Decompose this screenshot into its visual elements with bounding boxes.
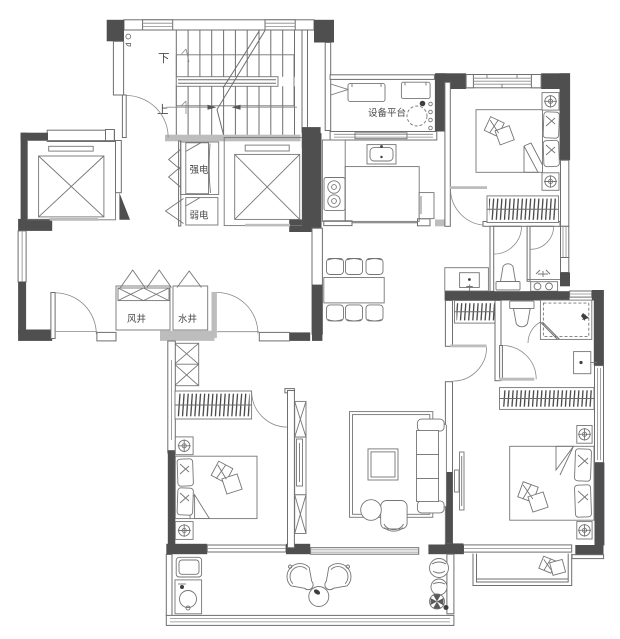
svg-text:风井: 风井 <box>127 313 146 325</box>
svg-text:设备平台: 设备平台 <box>368 107 406 119</box>
svg-text:水井: 水井 <box>178 313 197 325</box>
svg-text:下: 下 <box>158 53 170 65</box>
svg-text:强电: 强电 <box>190 164 210 176</box>
svg-text:上: 上 <box>157 104 169 117</box>
svg-text:弱电: 弱电 <box>190 210 210 222</box>
